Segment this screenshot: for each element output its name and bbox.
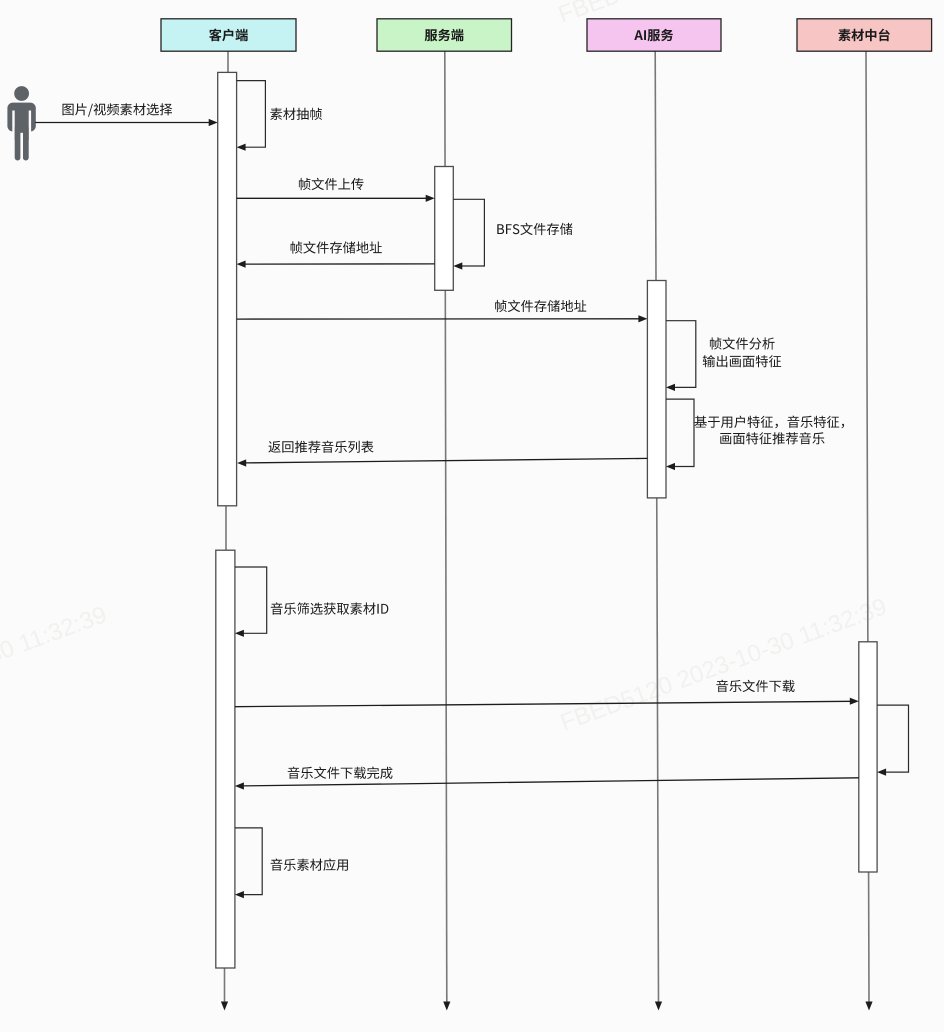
svg-text:FBED5120 2023-10-30 11:32:39: FBED5120 2023-10-30 11:32:39 — [0, 601, 110, 744]
svg-text:FBED5120 2023-10-30 11:32:39: FBED5120 2023-10-30 11:32:39 — [557, 593, 891, 736]
